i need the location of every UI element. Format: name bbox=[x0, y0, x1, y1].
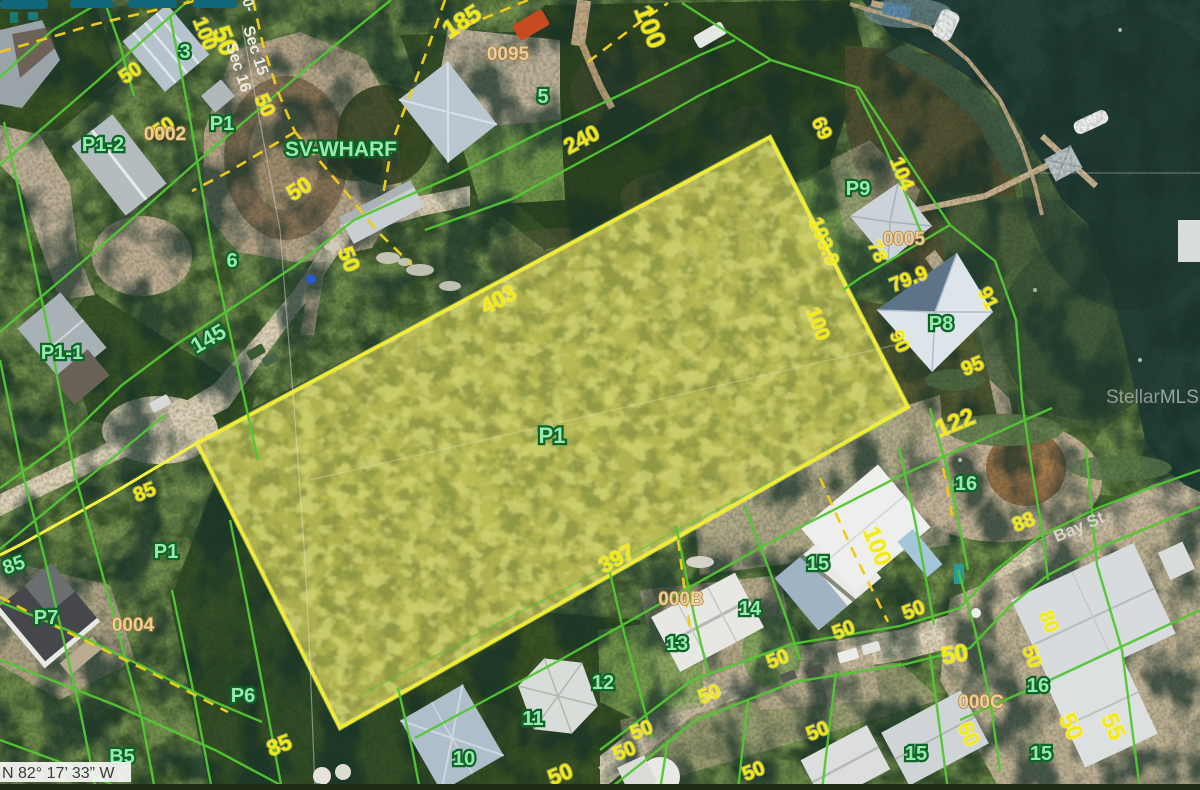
svg-text:15: 15 bbox=[807, 553, 829, 575]
svg-text:P6: P6 bbox=[231, 685, 255, 707]
svg-text:P1-1: P1-1 bbox=[41, 342, 83, 364]
svg-text:P9: P9 bbox=[846, 178, 870, 200]
svg-text:50: 50 bbox=[939, 639, 970, 670]
svg-text:0005: 0005 bbox=[883, 229, 926, 250]
svg-text:14: 14 bbox=[739, 598, 762, 620]
svg-text:0095: 0095 bbox=[487, 44, 530, 65]
svg-text:P7: P7 bbox=[34, 607, 58, 629]
svg-text:16: 16 bbox=[1027, 675, 1049, 697]
svg-text:15: 15 bbox=[1030, 743, 1052, 765]
svg-text:P1-2: P1-2 bbox=[82, 134, 124, 156]
svg-text:10: 10 bbox=[453, 748, 475, 770]
svg-text:6: 6 bbox=[226, 250, 237, 272]
svg-text:16: 16 bbox=[955, 473, 977, 495]
svg-text:P1: P1 bbox=[210, 113, 234, 135]
svg-text:SV-WHARF: SV-WHARF bbox=[285, 138, 397, 161]
svg-text:0004: 0004 bbox=[112, 615, 155, 636]
svg-text:15: 15 bbox=[905, 743, 927, 765]
svg-text:000B: 000B bbox=[658, 589, 703, 610]
svg-text:N 82° 17’ 33” W: N 82° 17’ 33” W bbox=[2, 765, 115, 782]
svg-text:12: 12 bbox=[592, 672, 614, 694]
svg-text:5: 5 bbox=[537, 86, 548, 108]
svg-text:P1: P1 bbox=[539, 423, 566, 448]
svg-text:11: 11 bbox=[522, 708, 543, 730]
svg-text:0002: 0002 bbox=[144, 124, 186, 145]
svg-text:StellarMLS: StellarMLS bbox=[1106, 387, 1199, 408]
svg-text:P1: P1 bbox=[154, 541, 178, 563]
svg-text:000C: 000C bbox=[958, 692, 1004, 713]
svg-text:P8: P8 bbox=[929, 313, 953, 335]
svg-text:3: 3 bbox=[179, 41, 190, 63]
svg-text:13: 13 bbox=[666, 633, 688, 655]
